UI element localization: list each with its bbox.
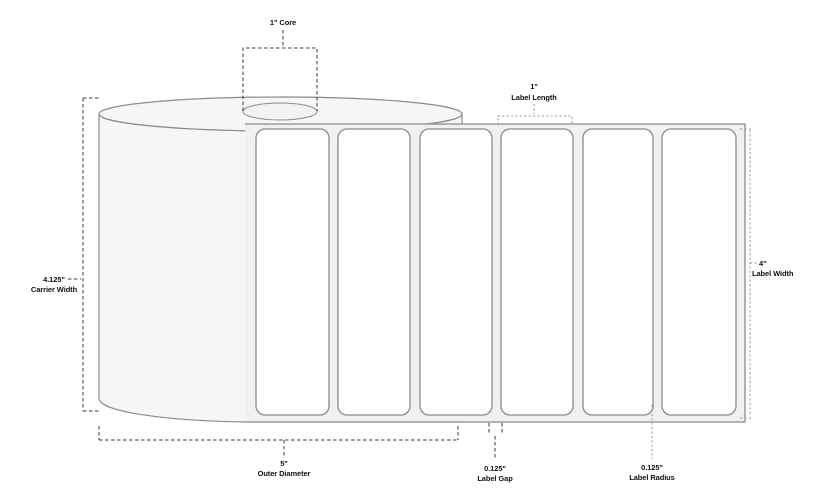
label-width-dimension: 4" Label Width bbox=[740, 129, 794, 418]
core-hole bbox=[243, 103, 317, 120]
label-sticker-5 bbox=[583, 129, 653, 415]
label-length-label: Label Length bbox=[511, 93, 557, 102]
outer-diameter-label: Outer Diameter bbox=[258, 469, 311, 478]
label-sticker-3 bbox=[420, 129, 492, 415]
label-gap-value: 0.125" bbox=[484, 464, 506, 473]
label-length-dimension: 1" Label Length bbox=[498, 82, 572, 125]
outer-diameter-dimension: 5" Outer Diameter bbox=[99, 426, 458, 478]
label-sticker-2 bbox=[338, 129, 410, 415]
carrier-width-dimension: 4.125" Carrier Width bbox=[31, 98, 99, 411]
label-width-value: 4" bbox=[759, 259, 767, 268]
label-sticker-4 bbox=[501, 129, 573, 415]
label-length-value: 1" bbox=[530, 82, 538, 91]
carrier-width-value: 4.125" bbox=[43, 275, 65, 284]
label-radius-label: Label Radius bbox=[629, 473, 674, 482]
label-sticker-6 bbox=[662, 129, 736, 415]
diagram-stage: 1" Core 1" Label Length 4.125" Carrier W… bbox=[0, 0, 822, 503]
label-roll-diagram: 1" Core 1" Label Length 4.125" Carrier W… bbox=[0, 0, 822, 503]
core-dimension-text: 1" Core bbox=[270, 18, 296, 27]
label-radius-value: 0.125" bbox=[641, 463, 663, 472]
label-gap-label: Label Gap bbox=[477, 474, 513, 483]
label-gap-dimension: 0.125" Label Gap bbox=[477, 423, 513, 483]
outer-diameter-value: 5" bbox=[280, 459, 288, 468]
label-width-label: Label Width bbox=[752, 269, 794, 278]
label-gap-bracket bbox=[489, 423, 502, 435]
carrier-width-label: Carrier Width bbox=[31, 285, 78, 294]
label-sticker-1 bbox=[256, 129, 329, 415]
